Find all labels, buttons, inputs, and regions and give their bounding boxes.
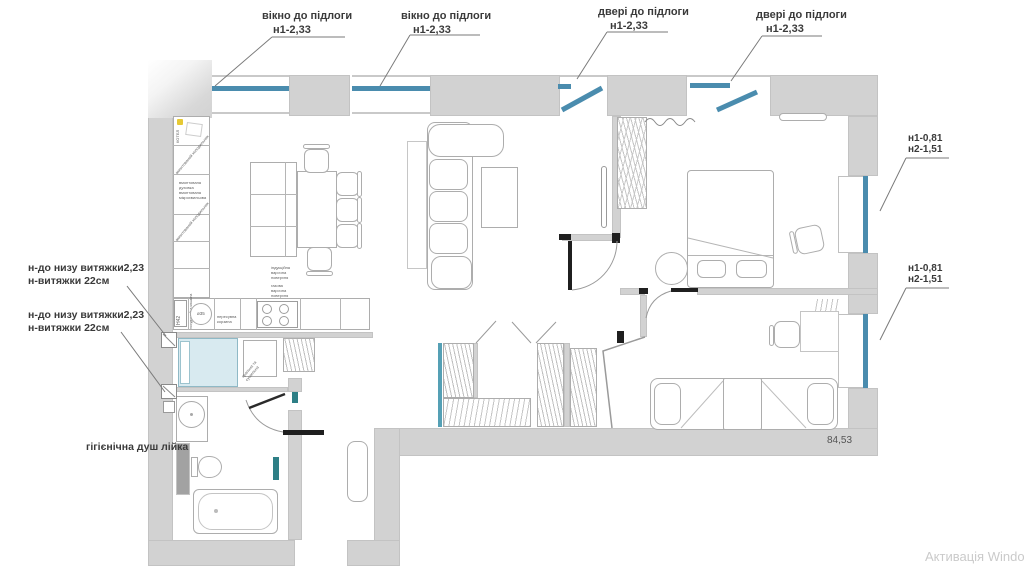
counter-divider bbox=[340, 298, 341, 330]
cabinet-divider bbox=[173, 268, 210, 269]
counter-divider bbox=[300, 298, 301, 330]
annotation-hood-1-line2: н-витяжки 22см bbox=[28, 275, 109, 287]
wall-bottom-left bbox=[148, 540, 295, 566]
window-niche-2 bbox=[838, 314, 864, 388]
coffee-table bbox=[481, 167, 518, 228]
curtain-pelmet bbox=[779, 113, 827, 121]
annotation-right-2-line2: н2-1,51 bbox=[908, 274, 942, 285]
bench-divider bbox=[250, 194, 297, 195]
leader-door-1 bbox=[577, 32, 668, 79]
daybed-pillow-left bbox=[654, 383, 681, 425]
wall-end-nub bbox=[559, 234, 571, 240]
hall-closet-1 bbox=[443, 343, 474, 398]
cabinet-divider bbox=[173, 145, 210, 146]
wall-right-1 bbox=[848, 116, 878, 176]
dining-chair-top bbox=[304, 149, 329, 173]
area-label: 84,53 bbox=[827, 435, 852, 446]
closet-glass-door bbox=[438, 343, 442, 427]
annotation-door-2-label: двері до підлоги bbox=[756, 9, 847, 21]
wall-kids-left bbox=[640, 295, 647, 337]
bedroom-wardrobe bbox=[617, 117, 647, 209]
chair-back bbox=[769, 325, 774, 346]
curtain-squiggle bbox=[645, 119, 695, 126]
daybed-blanket bbox=[723, 378, 762, 430]
wall-end-nub bbox=[612, 233, 620, 243]
wall-top-mid bbox=[430, 75, 560, 116]
daybed-pillow-right bbox=[807, 383, 834, 425]
wall-bottom-right bbox=[374, 428, 878, 456]
balcony-door-2-frame bbox=[690, 83, 730, 88]
hall-shoe-rack bbox=[443, 398, 531, 427]
bedroom-chair bbox=[793, 223, 825, 255]
annotation-right-2-line1: н1-0,81 bbox=[908, 263, 942, 274]
desk bbox=[800, 311, 839, 352]
hall-closet-3 bbox=[570, 348, 597, 427]
kids-door-leaf bbox=[671, 288, 698, 292]
wall-top-pier-1 bbox=[289, 75, 350, 116]
desk-chair bbox=[774, 321, 800, 348]
bed-line bbox=[688, 255, 773, 256]
leader-right-2 bbox=[880, 288, 949, 340]
window-lintel bbox=[212, 75, 289, 77]
annotation-window-1-height: н1-2,33 bbox=[273, 24, 311, 36]
chair-back bbox=[357, 171, 362, 197]
chair-back bbox=[306, 271, 333, 276]
wall-left bbox=[148, 62, 173, 566]
annotation-right-1-line1: н1-0,81 bbox=[908, 133, 942, 144]
dining-chair-right-3 bbox=[336, 224, 359, 248]
towel-rail-2 bbox=[273, 457, 279, 480]
oven-label: вмонтована духовка вмонтована мікрохвиль… bbox=[179, 180, 206, 200]
balcony-door-1-frame bbox=[558, 84, 571, 89]
sofa-cushion bbox=[429, 191, 468, 222]
bedside-pouf bbox=[655, 252, 688, 285]
hood-vent-2 bbox=[161, 384, 177, 399]
folding-doors bbox=[476, 321, 556, 343]
basket-label: пересувна корзина bbox=[217, 314, 236, 324]
wall-bath-hall-1 bbox=[288, 378, 302, 392]
balcony-door-2-swing bbox=[717, 92, 757, 110]
bench-divider bbox=[250, 226, 297, 227]
annotation-shower-head: гігієнічна душ лійка bbox=[86, 441, 188, 453]
hall-closet-2 bbox=[537, 343, 564, 427]
annotation-window-2-height: н1-2,33 bbox=[413, 24, 451, 36]
sink-diameter: ø35 bbox=[197, 311, 205, 317]
hood-vent-3 bbox=[163, 401, 175, 413]
counter-divider bbox=[240, 298, 241, 330]
chair-back bbox=[357, 197, 362, 223]
balcony-door-1-swing bbox=[562, 88, 602, 110]
leader-right-1 bbox=[880, 158, 949, 211]
dining-chair-right-1 bbox=[336, 172, 359, 196]
bedroom-door-leaf bbox=[568, 241, 572, 290]
toilet bbox=[198, 456, 222, 478]
window-2 bbox=[352, 86, 430, 91]
annotation-right-1-line2: н2-1,51 bbox=[908, 144, 942, 155]
sofa-cushion bbox=[429, 159, 468, 190]
wall-right-2 bbox=[848, 253, 878, 314]
bed-pillow bbox=[697, 260, 726, 278]
floor-plan: КОТЕЛ вмонтований холодильник вмонтована… bbox=[0, 0, 1024, 566]
angled-wall bbox=[603, 337, 645, 428]
burner bbox=[279, 304, 289, 314]
sofa-cushion bbox=[429, 223, 468, 254]
burner bbox=[262, 316, 272, 326]
window-sill bbox=[212, 112, 289, 114]
bed-pillow bbox=[736, 260, 767, 278]
chair-back bbox=[357, 223, 362, 249]
dining-table bbox=[297, 171, 337, 248]
window-1 bbox=[212, 86, 289, 91]
annotation-hood-2-line1: н-до низу витяжки2,23 bbox=[28, 309, 144, 321]
windows-activation-watermark: Активація Windows bbox=[925, 549, 1024, 564]
door-lintel bbox=[560, 75, 607, 77]
sofa-cushion bbox=[431, 256, 472, 289]
sofa-console bbox=[407, 141, 427, 269]
bath-door-leaf bbox=[249, 394, 285, 408]
window-sill bbox=[352, 112, 430, 114]
bedroom-door-arc bbox=[572, 241, 617, 290]
annotation-door-1-label: двері до підлоги bbox=[598, 6, 689, 18]
dining-chair-right-2 bbox=[336, 198, 359, 222]
tv bbox=[601, 166, 607, 228]
window-right-2 bbox=[863, 314, 868, 388]
annotation-window-2-label: вікно до підлоги bbox=[401, 10, 491, 22]
annotation-hood-2-line2: н-витяжки 22см bbox=[28, 322, 109, 334]
kids-door-arc bbox=[646, 291, 671, 318]
boiler-label: КОТЕЛ bbox=[175, 121, 180, 143]
toilet-tank bbox=[191, 457, 198, 477]
burner bbox=[262, 304, 272, 314]
door-lintel bbox=[687, 75, 770, 77]
burner bbox=[279, 316, 289, 326]
annotation-door-2-height: н1-2,33 bbox=[766, 23, 804, 35]
wall-wc-divider bbox=[173, 387, 288, 392]
wall-bedroom-kids-2 bbox=[697, 288, 878, 295]
entry-door-leaf bbox=[283, 430, 324, 435]
bath-closet bbox=[283, 338, 315, 372]
wall-top-pier-2 bbox=[607, 75, 687, 116]
cabinet-divider bbox=[173, 214, 210, 215]
window-right-1 bbox=[863, 176, 868, 253]
boiler-icon bbox=[185, 122, 203, 137]
entry-door-arc bbox=[246, 400, 283, 432]
annotation-hood-1-line1: н-до низу витяжки2,23 bbox=[28, 262, 144, 274]
bench-back-line bbox=[285, 162, 286, 257]
basin-drain bbox=[190, 413, 193, 416]
wall-corner-gradient bbox=[148, 60, 212, 118]
annotation-window-1-label: вікно до підлоги bbox=[262, 10, 352, 22]
bathtub-inner bbox=[198, 493, 273, 530]
annotation-door-1-height: н1-2,33 bbox=[610, 20, 648, 32]
hob-label: індукційна варочна поверхня газова вароч… bbox=[271, 265, 290, 298]
wall-end-nub bbox=[617, 331, 624, 343]
dining-bench bbox=[250, 162, 297, 257]
window-lintel bbox=[352, 75, 430, 77]
counter-divider bbox=[214, 298, 215, 330]
h42-label: Н42 bbox=[176, 302, 182, 325]
tub-drain bbox=[214, 509, 218, 513]
wall-end-nub bbox=[639, 288, 648, 294]
hood-vent-1 bbox=[161, 332, 177, 348]
window-niche-1 bbox=[838, 176, 864, 253]
hall-cabinet bbox=[347, 441, 368, 502]
wall-bottom-entry-pier bbox=[347, 540, 400, 566]
sofa-chaise bbox=[428, 124, 504, 157]
shower-bench bbox=[180, 341, 190, 384]
wall-top-right bbox=[770, 75, 878, 116]
dining-chair-bottom bbox=[307, 247, 332, 271]
